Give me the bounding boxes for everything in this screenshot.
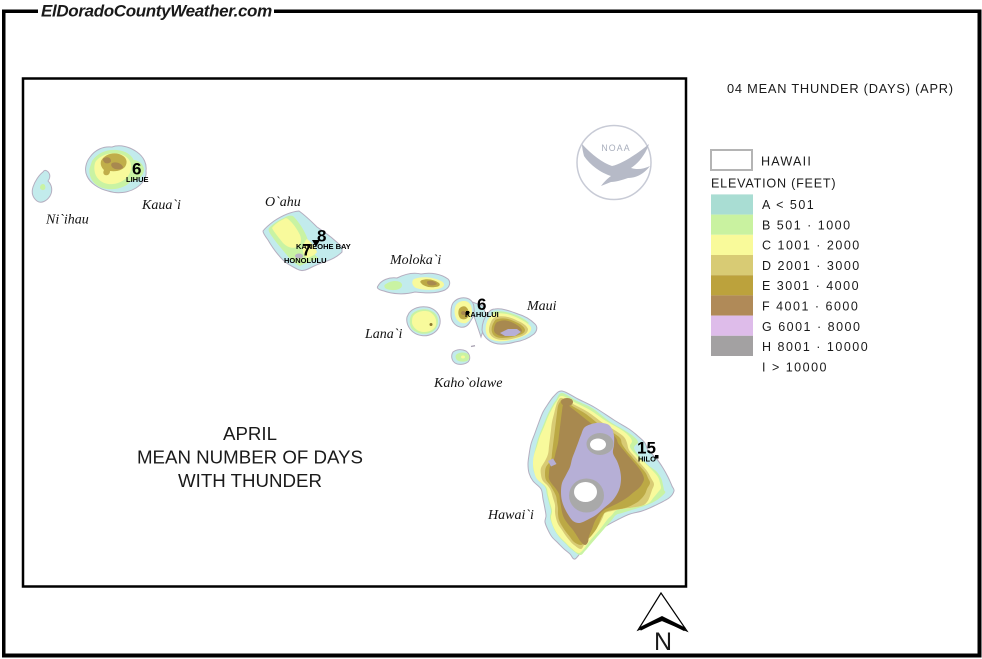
svg-text:Kaho`olawe: Kaho`olawe xyxy=(433,376,502,391)
svg-text:Moloka`i: Moloka`i xyxy=(389,253,441,268)
svg-text:APRIL: APRIL xyxy=(223,423,277,444)
svg-text:ElDoradoCountyWeather.com: ElDoradoCountyWeather.com xyxy=(41,2,272,21)
svg-text:MEAN NUMBER OF DAYS: MEAN NUMBER OF DAYS xyxy=(137,447,363,468)
svg-text:WITH THUNDER: WITH THUNDER xyxy=(178,470,322,491)
svg-text:G 6001 · 8000: G 6001 · 8000 xyxy=(762,320,861,334)
svg-text:HAWAII: HAWAII xyxy=(761,154,812,168)
svg-text:Maui: Maui xyxy=(526,299,557,314)
svg-text:N: N xyxy=(654,628,672,656)
svg-text:A < 501: A < 501 xyxy=(762,198,815,212)
svg-text:D 2001 · 3000: D 2001 · 3000 xyxy=(762,259,861,273)
svg-text:HILO: HILO xyxy=(638,455,656,464)
svg-text:Kaua`i: Kaua`i xyxy=(141,198,181,213)
svg-text:B 501 · 1000: B 501 · 1000 xyxy=(762,218,852,232)
svg-text:I > 10000: I > 10000 xyxy=(762,360,828,374)
svg-text:04 MEAN THUNDER (DAYS) (APR): 04 MEAN THUNDER (DAYS) (APR) xyxy=(727,81,954,96)
svg-text:HONOLULU: HONOLULU xyxy=(284,256,327,265)
svg-text:ELEVATION (FEET): ELEVATION (FEET) xyxy=(711,177,836,191)
svg-text:KAHULUI: KAHULUI xyxy=(465,310,499,319)
svg-text:F 4001 · 6000: F 4001 · 6000 xyxy=(762,300,859,314)
svg-text:H 8001 · 10000: H 8001 · 10000 xyxy=(762,340,869,354)
svg-text:NOAA: NOAA xyxy=(601,143,630,153)
svg-text:O`ahu: O`ahu xyxy=(265,195,301,210)
svg-text:C 1001 · 2000: C 1001 · 2000 xyxy=(762,239,861,253)
svg-text:Ni`ihau: Ni`ihau xyxy=(45,213,89,228)
svg-text:LIHUE: LIHUE xyxy=(126,175,149,184)
svg-text:Lana`i: Lana`i xyxy=(364,327,402,342)
svg-text:E 3001 · 4000: E 3001 · 4000 xyxy=(762,279,860,293)
svg-text:Hawai`i: Hawai`i xyxy=(487,508,534,523)
